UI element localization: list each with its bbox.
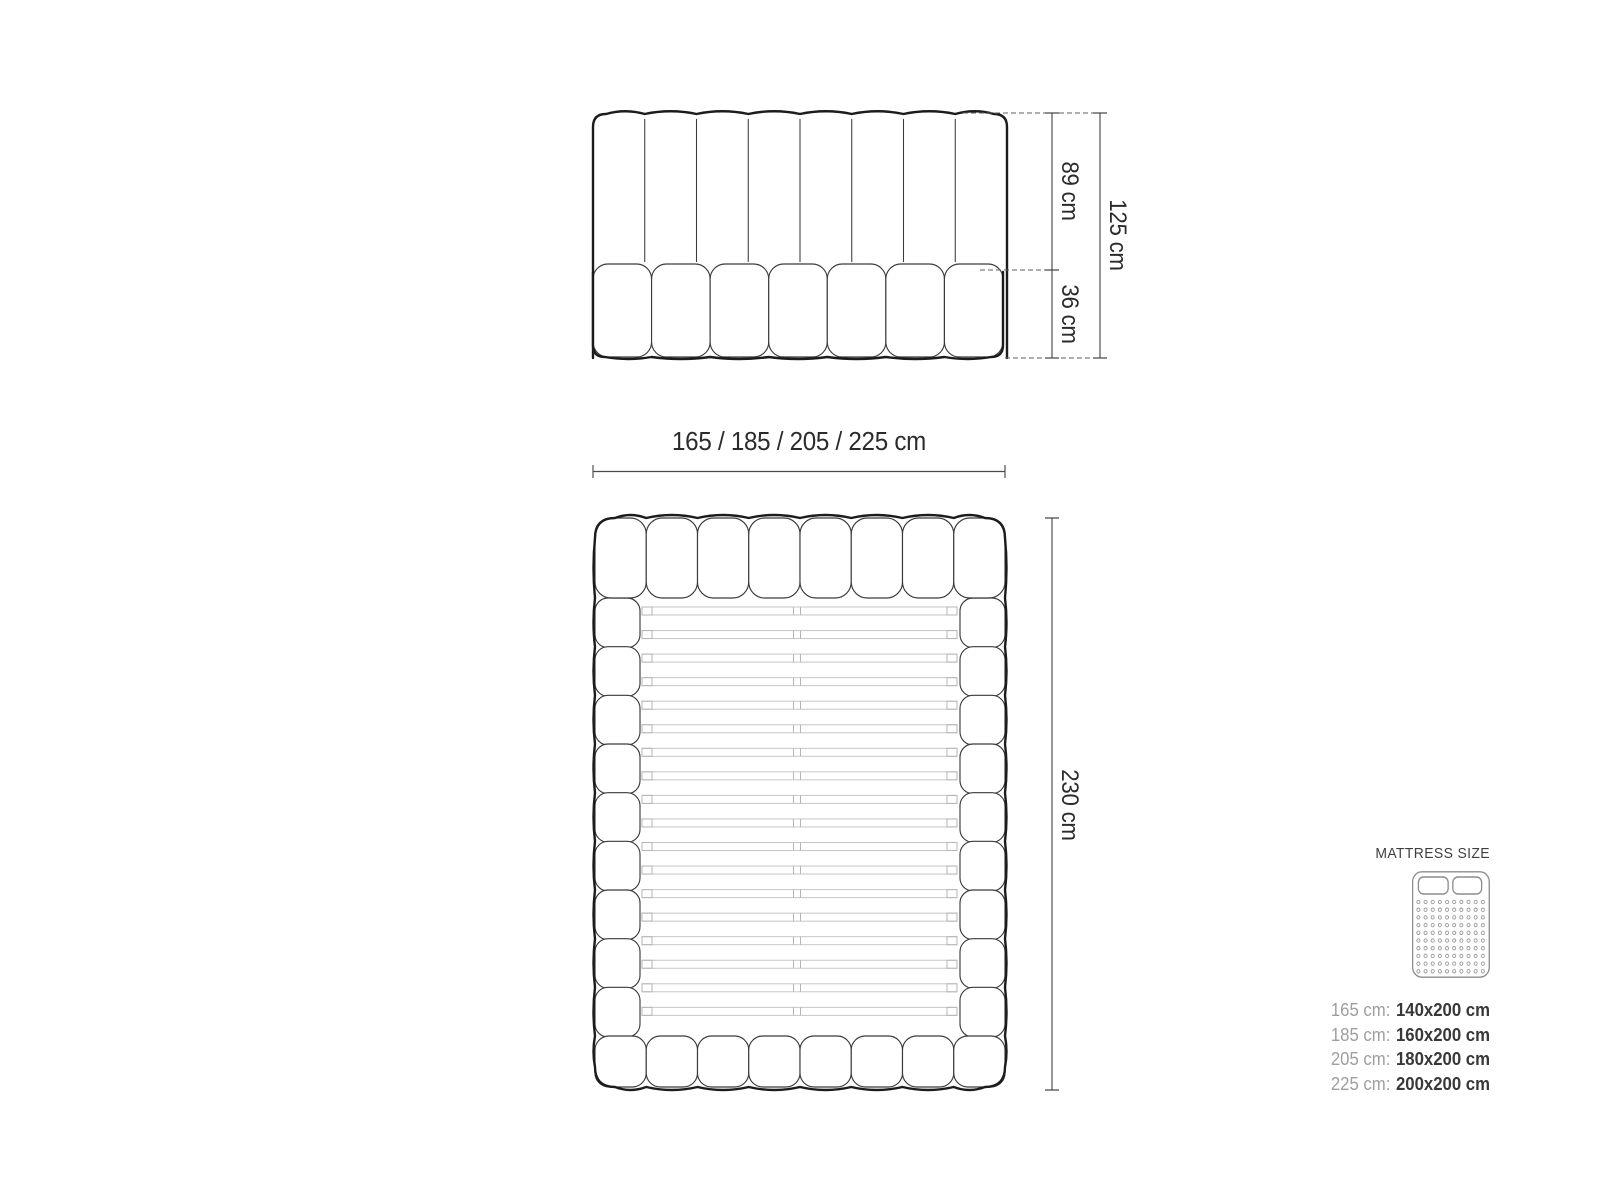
mattress-size-list: 165 cm:140x200 cm 185 cm:160x200 cm 205 …: [1192, 998, 1490, 1096]
mattress-size-row: 165 cm:140x200 cm: [1192, 998, 1490, 1023]
bed-slat: [642, 772, 957, 780]
side-rail-cushion: [595, 647, 640, 697]
tufting-dot: [1453, 908, 1456, 911]
tufting-dot: [1424, 931, 1427, 934]
frame-size-label: 225 cm:: [1331, 1074, 1391, 1094]
footer-cushion: [800, 1036, 851, 1087]
side-rail-cushion: [960, 987, 1005, 1037]
headboard-height-label: 89 cm: [1057, 161, 1084, 220]
tufting-dot: [1445, 900, 1448, 903]
header-cushion: [595, 518, 646, 598]
tufting-dot: [1481, 916, 1484, 919]
tufting-dot: [1445, 954, 1448, 957]
tufting-dot: [1438, 939, 1441, 942]
side-rail-cushion: [960, 598, 1005, 648]
bed-slat: [642, 960, 957, 968]
pillow-left-icon: [1418, 877, 1448, 894]
tufting-dot: [1424, 962, 1427, 965]
tufting-dot: [1424, 923, 1427, 926]
tufting-dot: [1453, 931, 1456, 934]
tufting-dot: [1481, 900, 1484, 903]
tufting-dot: [1417, 916, 1420, 919]
tufting-dot: [1431, 923, 1434, 926]
mattress-size-row: 185 cm:160x200 cm: [1192, 1023, 1490, 1048]
tufting-dot: [1481, 970, 1484, 973]
tufting-dot: [1431, 908, 1434, 911]
tufting-dot: [1453, 962, 1456, 965]
header-cushion: [903, 518, 954, 598]
header-cushion: [800, 518, 851, 598]
bed-slat: [642, 795, 957, 803]
bed-front-view: [593, 111, 1007, 359]
side-rail-cushion: [960, 793, 1005, 843]
footer-cushion: [595, 1036, 646, 1087]
tufting-dot: [1431, 970, 1434, 973]
tufting-dot: [1481, 939, 1484, 942]
header-cushion: [646, 518, 697, 598]
side-rail-cushion: [960, 890, 1005, 940]
tufting-dot: [1467, 923, 1470, 926]
bed-slat: [642, 607, 957, 615]
tufting-dot: [1467, 962, 1470, 965]
tufting-dot: [1467, 954, 1470, 957]
tufting-dot: [1438, 931, 1441, 934]
tufting-dot: [1417, 939, 1420, 942]
tufting-dot: [1453, 900, 1456, 903]
mattress-icon: [1412, 871, 1490, 978]
tufting-dot: [1431, 900, 1434, 903]
tufting-dot: [1474, 947, 1477, 950]
tufting-dot: [1460, 939, 1463, 942]
tufting-dot: [1474, 916, 1477, 919]
tufting-dot: [1460, 931, 1463, 934]
total-height-label: 125 cm: [1105, 199, 1132, 270]
mattress-size-legend: MATTRESS SIZE 165 cm:140x200 cm 185 cm:1…: [1170, 845, 1490, 1096]
tufting-dot: [1467, 970, 1470, 973]
tufting-dot: [1431, 931, 1434, 934]
tufting-dot: [1438, 954, 1441, 957]
pillow-right-icon: [1453, 877, 1482, 894]
base-cushion-front: [944, 264, 1003, 357]
tufting-dot: [1445, 908, 1448, 911]
base-height-label: 36 cm: [1057, 284, 1084, 343]
bed-dimension-sheet: 89 cm 36 cm 125 cm 165 / 185 / 205 / 225…: [0, 0, 1600, 1200]
tufting-dot: [1460, 900, 1463, 903]
bed-slat: [642, 701, 957, 709]
side-rail-cushion: [595, 987, 640, 1037]
tufting-dot: [1453, 970, 1456, 973]
side-rail-cushion: [595, 890, 640, 940]
tufting-dot: [1460, 923, 1463, 926]
tufting-dot: [1467, 947, 1470, 950]
tufting-dot: [1467, 908, 1470, 911]
frame-size-label: 165 cm:: [1331, 1000, 1391, 1020]
side-rail-cushion: [960, 695, 1005, 745]
side-rail-cushion: [960, 841, 1005, 891]
tufting-dot: [1431, 954, 1434, 957]
base-cushion-front: [827, 264, 886, 357]
tufting-dot: [1460, 916, 1463, 919]
side-rail-cushion: [595, 841, 640, 891]
tufting-dot: [1424, 939, 1427, 942]
tufting-dot: [1424, 947, 1427, 950]
bed-top-view: [594, 515, 1007, 1090]
tufting-dot: [1438, 900, 1441, 903]
bed-slat: [642, 725, 957, 733]
side-rail-cushion: [960, 744, 1005, 794]
tufting-dot: [1438, 962, 1441, 965]
tufting-dot: [1460, 970, 1463, 973]
side-rail-cushion: [595, 695, 640, 745]
bed-slat: [642, 866, 957, 874]
tufting-dot: [1445, 931, 1448, 934]
tufting-dot: [1453, 939, 1456, 942]
tufting-dot: [1438, 947, 1441, 950]
mattress-size-value: 160x200 cm: [1396, 1025, 1490, 1045]
base-cushion-front: [710, 264, 769, 357]
tufting-dot: [1431, 947, 1434, 950]
tufting-dot: [1445, 916, 1448, 919]
tufting-dot: [1474, 900, 1477, 903]
mattress-size-value: 200x200 cm: [1396, 1074, 1490, 1094]
footer-cushion: [954, 1036, 1005, 1087]
length-label: 230 cm: [1057, 769, 1084, 840]
mattress-size-value: 140x200 cm: [1396, 1000, 1490, 1020]
mattress-size-title: MATTRESS SIZE: [1192, 845, 1490, 862]
tufting-dot: [1474, 923, 1477, 926]
tufting-dot: [1424, 900, 1427, 903]
header-cushion: [749, 518, 800, 598]
mattress-size-value: 180x200 cm: [1396, 1049, 1490, 1069]
tufting-dot: [1438, 970, 1441, 973]
bed-slat: [642, 678, 957, 686]
base-cushion-front: [652, 264, 711, 357]
footer-cushion: [749, 1036, 800, 1087]
bed-slat: [642, 937, 957, 945]
footer-cushion: [698, 1036, 749, 1087]
tufting-dot: [1453, 916, 1456, 919]
frame-size-label: 185 cm:: [1331, 1025, 1391, 1045]
mattress-size-row: 225 cm:200x200 cm: [1192, 1072, 1490, 1097]
tufting-dot: [1445, 970, 1448, 973]
tufting-dot: [1424, 954, 1427, 957]
footer-cushion: [903, 1036, 954, 1087]
bed-slat: [642, 819, 957, 827]
tufting-dot: [1481, 923, 1484, 926]
tufting-dot: [1474, 908, 1477, 911]
header-cushion: [851, 518, 902, 598]
tufting-dot: [1438, 916, 1441, 919]
tufting-dot: [1467, 931, 1470, 934]
footer-cushion: [851, 1036, 902, 1087]
tufting-dot: [1417, 931, 1420, 934]
width-dimension-line: [593, 465, 1005, 478]
tufting-dot: [1481, 954, 1484, 957]
tufting-dot: [1431, 939, 1434, 942]
tufting-dot: [1481, 962, 1484, 965]
tufting-dot: [1460, 908, 1463, 911]
bed-slat: [642, 890, 957, 898]
tufting-dot: [1417, 908, 1420, 911]
base-cushion-front: [769, 264, 828, 357]
tufting-dot: [1438, 923, 1441, 926]
base-cushion-front: [593, 264, 652, 357]
frame-size-label: 205 cm:: [1331, 1049, 1391, 1069]
tufting-dot: [1467, 939, 1470, 942]
base-cushion-front: [886, 264, 945, 357]
footer-cushion: [646, 1036, 697, 1087]
bed-slat: [642, 631, 957, 639]
tufting-dot: [1453, 947, 1456, 950]
side-rail-cushion: [595, 939, 640, 989]
tufting-dot: [1467, 900, 1470, 903]
header-cushion: [698, 518, 749, 598]
tufting-dot: [1424, 916, 1427, 919]
tufting-dot: [1417, 900, 1420, 903]
width-options-label: 165 / 185 / 205 / 225 cm: [672, 427, 926, 456]
tufting-dot: [1445, 962, 1448, 965]
tufting-dot: [1424, 970, 1427, 973]
side-rail-cushion: [960, 939, 1005, 989]
tufting-dot: [1481, 931, 1484, 934]
side-rail-cushion: [960, 647, 1005, 697]
tufting-dot: [1417, 970, 1420, 973]
tufting-dot: [1445, 947, 1448, 950]
tufting-dot: [1431, 962, 1434, 965]
tufting-dot: [1474, 970, 1477, 973]
side-rail-cushion: [595, 793, 640, 843]
side-rail-cushion: [595, 744, 640, 794]
tufting-dot: [1474, 931, 1477, 934]
side-rail-cushion: [595, 598, 640, 648]
tufting-dot: [1474, 954, 1477, 957]
tufting-dot: [1417, 923, 1420, 926]
tufting-dot: [1481, 947, 1484, 950]
tufting-dot: [1481, 908, 1484, 911]
tufting-dot: [1460, 947, 1463, 950]
tufting-dot: [1467, 916, 1470, 919]
bed-slat: [642, 913, 957, 921]
tufting-dot: [1453, 954, 1456, 957]
tufting-dot: [1431, 916, 1434, 919]
tufting-dot: [1460, 954, 1463, 957]
bed-slat: [642, 748, 957, 756]
bed-slat: [642, 654, 957, 662]
tufting-dot: [1424, 908, 1427, 911]
tufting-dot: [1417, 947, 1420, 950]
tufting-dot: [1453, 923, 1456, 926]
bed-slat: [642, 843, 957, 851]
tufting-dot: [1445, 939, 1448, 942]
header-cushion: [954, 518, 1005, 598]
tufting-dot: [1474, 939, 1477, 942]
tufting-dot: [1438, 908, 1441, 911]
bed-slat: [642, 1007, 957, 1015]
bed-slat: [642, 984, 957, 992]
tufting-dot: [1474, 962, 1477, 965]
mattress-tufting-dots-icon: [1417, 900, 1485, 973]
tufting-dot: [1417, 954, 1420, 957]
tufting-dot: [1460, 962, 1463, 965]
tufting-dot: [1417, 962, 1420, 965]
tufting-dot: [1445, 923, 1448, 926]
mattress-size-row: 205 cm:180x200 cm: [1192, 1047, 1490, 1072]
